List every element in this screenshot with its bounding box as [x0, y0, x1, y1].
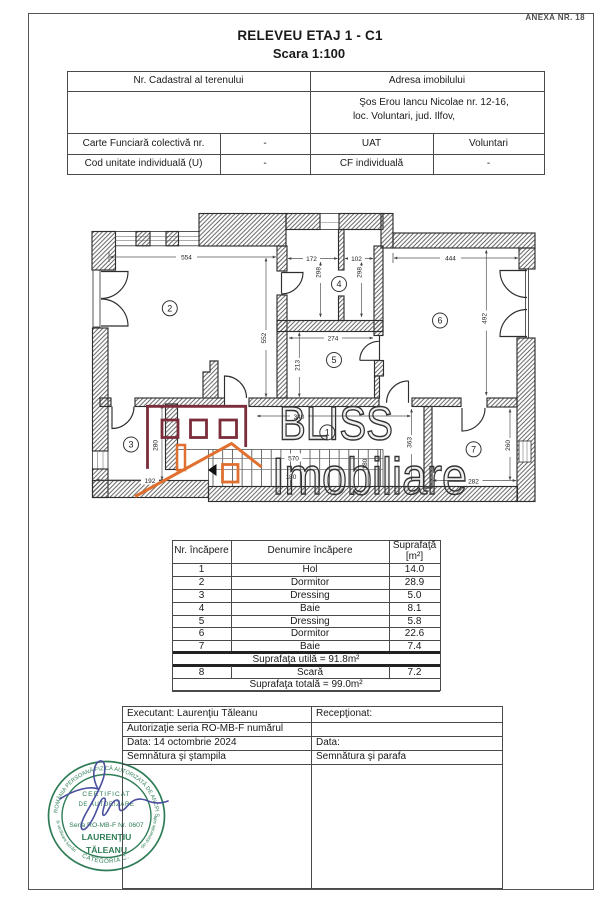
svg-text:5: 5	[331, 355, 336, 365]
svg-text:280: 280	[153, 440, 160, 451]
svg-text:LAURENŢIU: LAURENŢIU	[82, 832, 132, 842]
svg-text:2: 2	[167, 304, 172, 314]
svg-text:282: 282	[468, 479, 479, 486]
svg-text:213: 213	[294, 360, 301, 371]
svg-text:444: 444	[445, 256, 456, 263]
svg-text:298: 298	[357, 267, 364, 278]
svg-text:552: 552	[261, 332, 268, 343]
svg-text:363: 363	[407, 437, 414, 448]
svg-text:CERTIFICAT: CERTIFICAT	[82, 791, 130, 798]
svg-text:Imobiliare: Imobiliare	[272, 448, 467, 506]
svg-text:102: 102	[351, 256, 362, 263]
svg-text:172: 172	[306, 256, 317, 263]
svg-text:260: 260	[505, 440, 512, 451]
svg-text:554: 554	[181, 255, 192, 262]
svg-text:din domeniile sale: din domeniile sale	[140, 815, 158, 849]
svg-text:ROMÂNIA PERSOANĂ FIZICĂ AUTORI: ROMÂNIA PERSOANĂ FIZICĂ AUTORIZATĂ DE AN…	[0, 0, 160, 817]
svg-text:492: 492	[481, 313, 488, 324]
svg-text:TĂLEANU: TĂLEANU	[86, 845, 127, 855]
svg-text:192: 192	[145, 478, 156, 485]
svg-text:274: 274	[328, 336, 339, 343]
svg-text:298: 298	[316, 267, 323, 278]
svg-text:4: 4	[336, 279, 341, 289]
svg-text:3: 3	[128, 440, 133, 450]
svg-text:7: 7	[471, 445, 476, 455]
svg-text:6: 6	[437, 316, 442, 326]
svg-text:BLISS: BLISS	[279, 397, 393, 450]
